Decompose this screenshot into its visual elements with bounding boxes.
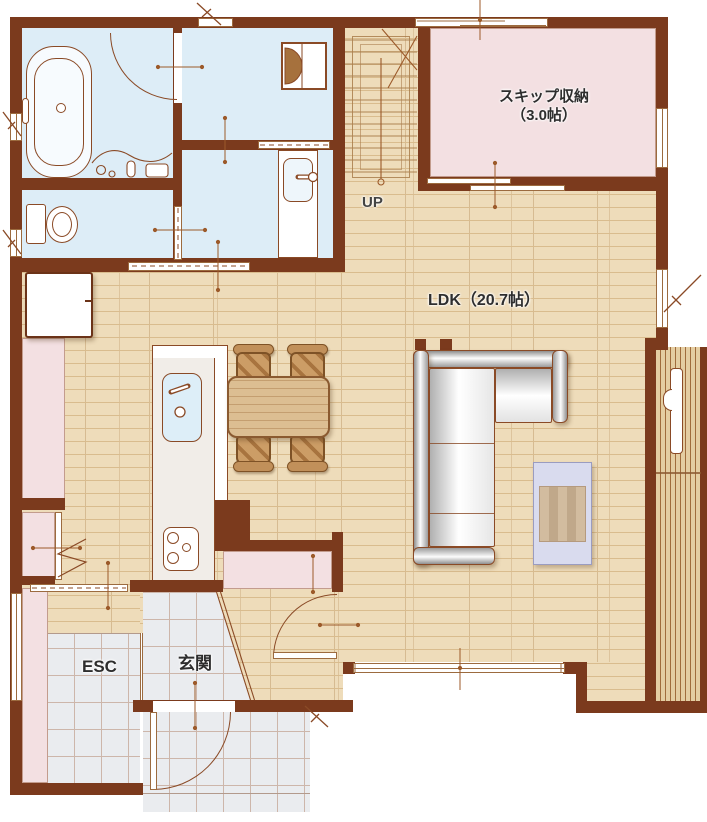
skip-top-window bbox=[415, 18, 548, 27]
skip-sliding-door-a bbox=[427, 178, 511, 184]
refrigerator-door-split bbox=[85, 300, 91, 302]
up-label: UP bbox=[362, 194, 383, 213]
ldk-label: LDK（20.7帖） bbox=[428, 291, 540, 311]
closet bbox=[22, 512, 55, 580]
ldk-floor-bottom-right bbox=[587, 662, 645, 702]
exterior-wall-top bbox=[10, 17, 668, 28]
bathtub-handle bbox=[22, 98, 29, 124]
esc-closet bbox=[22, 588, 48, 783]
sofa-seat-chaise bbox=[495, 368, 552, 423]
skip-sliding-door-b bbox=[470, 185, 565, 191]
dining-chair bbox=[236, 434, 271, 464]
dining-chair-back bbox=[287, 461, 328, 472]
floor-plan: スキップ収納 （3.0帖） LDK（20.7帖） UP ESC 玄関 bbox=[0, 0, 707, 822]
sofa-arm-top bbox=[413, 350, 568, 368]
dining-table bbox=[227, 376, 330, 438]
wall-pantry-divider bbox=[22, 498, 65, 510]
rug-mat bbox=[539, 486, 586, 542]
wall-sanitary-right bbox=[333, 28, 345, 272]
shoe-closet bbox=[223, 551, 332, 589]
ldk-right-window bbox=[656, 269, 668, 328]
dining-chair-back bbox=[233, 461, 274, 472]
skip-storage-label: スキップ収納 （3.0帖） bbox=[460, 88, 628, 126]
porch-step-line bbox=[143, 793, 310, 794]
deck-bench-handle bbox=[663, 389, 672, 411]
ldk-bottom-window bbox=[353, 663, 565, 673]
sofa-arm-bottom bbox=[413, 547, 495, 565]
stove-burner-2 bbox=[182, 543, 191, 552]
toilet-tank bbox=[26, 204, 46, 244]
stove-burner-3 bbox=[167, 552, 179, 564]
closet-door bbox=[55, 512, 62, 580]
pillar-stub bbox=[415, 339, 426, 350]
sofa-arm-left bbox=[413, 350, 429, 565]
sofa-seat-divider bbox=[430, 513, 494, 514]
wall-hall-stub bbox=[332, 532, 343, 592]
hall-sliding-door bbox=[30, 584, 128, 592]
washing-machine bbox=[281, 42, 327, 90]
hall-door-leaf bbox=[273, 652, 337, 659]
vanity-sink bbox=[283, 158, 313, 202]
refrigerator bbox=[25, 272, 93, 338]
wall-bath-toilet bbox=[22, 178, 173, 190]
washroom-sliding-door bbox=[128, 262, 250, 271]
sofa-seat-main bbox=[429, 368, 495, 547]
genkan-label: 玄関 bbox=[178, 653, 212, 674]
toilet-sliding-door bbox=[174, 206, 182, 260]
washroom-divider-sliding bbox=[258, 141, 330, 149]
stove-burner-1 bbox=[167, 532, 179, 544]
pillar-stub bbox=[440, 339, 452, 350]
exterior-wall-bottom-left bbox=[10, 783, 143, 795]
sofa-arm-right bbox=[552, 350, 568, 423]
toilet-seat bbox=[52, 212, 72, 237]
skip-right-window bbox=[656, 108, 668, 168]
wall-under-kitchen bbox=[130, 580, 223, 592]
kitchen-sink bbox=[162, 373, 202, 442]
sofa-seat-divider bbox=[430, 443, 494, 444]
entrance-door-leaf bbox=[150, 712, 157, 790]
dining-chair bbox=[290, 434, 325, 464]
pantry bbox=[22, 338, 65, 500]
deck-divider-line bbox=[656, 472, 701, 474]
esc-hall-floor bbox=[48, 592, 140, 634]
esc-label: ESC bbox=[82, 656, 117, 677]
bath-window bbox=[10, 113, 22, 141]
wall-stairs-right bbox=[418, 28, 430, 191]
top-vent-window bbox=[198, 18, 233, 27]
wall-kitchen-bottom bbox=[215, 540, 343, 551]
bathtub-drain bbox=[56, 103, 66, 113]
deck-rail bbox=[700, 347, 707, 713]
exterior-wall-bottom-right bbox=[576, 701, 707, 713]
esc-genkan-divider bbox=[140, 633, 143, 700]
deck-bench bbox=[670, 368, 683, 454]
toilet-window bbox=[10, 229, 22, 257]
esc-window bbox=[11, 593, 22, 701]
skip-storage-label-line1: スキップ収納 bbox=[460, 88, 628, 107]
ldk-wall-right bbox=[645, 338, 656, 712]
entrance-door-opening bbox=[153, 701, 235, 712]
skip-storage-label-line2: （3.0帖） bbox=[460, 107, 628, 126]
